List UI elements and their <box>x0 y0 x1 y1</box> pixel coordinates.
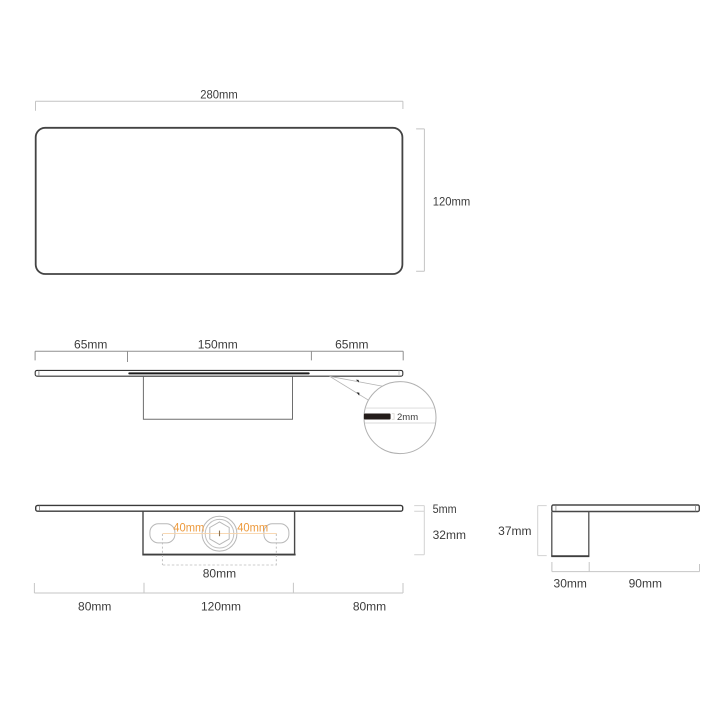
svg-text:80mm: 80mm <box>353 599 386 613</box>
svg-text:80mm: 80mm <box>203 566 236 580</box>
svg-text:37mm: 37mm <box>498 524 531 538</box>
svg-text:80mm: 80mm <box>78 599 111 613</box>
svg-text:30mm: 30mm <box>554 577 587 591</box>
svg-text:120mm: 120mm <box>201 599 241 613</box>
svg-text:120mm: 120mm <box>433 195 471 209</box>
svg-text:150mm: 150mm <box>198 338 238 352</box>
svg-text:65mm: 65mm <box>335 338 368 352</box>
svg-text:2mm: 2mm <box>397 412 418 423</box>
svg-text:65mm: 65mm <box>74 338 107 352</box>
svg-text:32mm: 32mm <box>433 528 466 542</box>
svg-text:5mm: 5mm <box>433 502 457 516</box>
svg-text:40mm: 40mm <box>237 521 268 535</box>
svg-text:280mm: 280mm <box>200 87 238 101</box>
svg-text:90mm: 90mm <box>629 577 662 591</box>
svg-text:40mm: 40mm <box>173 521 204 535</box>
